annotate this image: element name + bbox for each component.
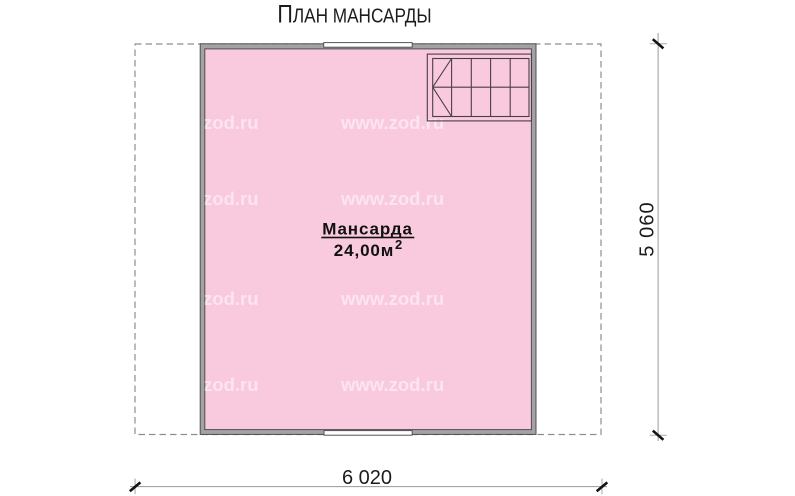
svg-text:6 020: 6 020 (342, 467, 392, 489)
svg-text:5 060: 5 060 (637, 201, 659, 257)
svg-text:www.zod.ru: www.zod.ru (154, 112, 258, 133)
svg-text:www.zod.ru: www.zod.ru (154, 188, 258, 209)
svg-text:Мансарда: Мансарда (322, 219, 413, 238)
svg-text:www.zod.ru: www.zod.ru (340, 288, 444, 309)
svg-text:24,00м: 24,00м (334, 241, 395, 260)
svg-text:2: 2 (395, 237, 402, 252)
svg-text:www.zod.ru: www.zod.ru (154, 374, 258, 395)
svg-text:www.zod.ru: www.zod.ru (340, 112, 444, 133)
svg-text:ПЛАН МАНСАРДЫ: ПЛАН МАНСАРДЫ (277, 0, 431, 28)
svg-text:www.zod.ru: www.zod.ru (340, 188, 444, 209)
svg-text:www.zod.ru: www.zod.ru (340, 374, 444, 395)
svg-text:www.zod.ru: www.zod.ru (154, 288, 258, 309)
